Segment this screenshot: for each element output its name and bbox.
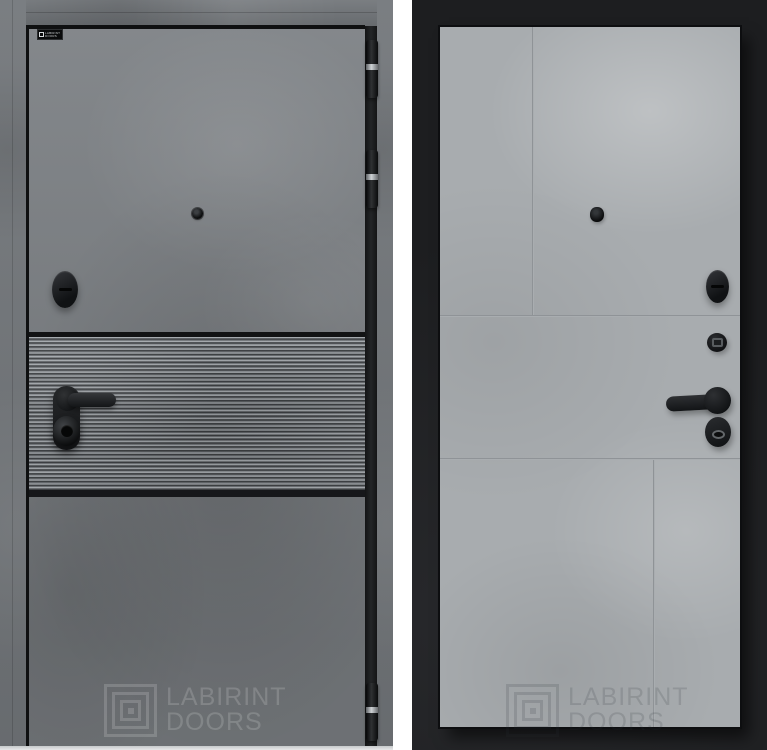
watermark-text: LABIRINT DOORS — [166, 685, 287, 735]
fluted-trim-bottom — [29, 490, 365, 497]
brand-plate-text: LABIRINT DOORS — [45, 32, 60, 38]
door-rebate-gap — [365, 26, 377, 750]
peephole — [192, 208, 203, 219]
thumbturn-knob-interior — [706, 270, 729, 303]
wc-fixator — [707, 333, 727, 352]
hinge — [366, 683, 378, 741]
watermark-line1: LABIRINT — [568, 685, 689, 710]
watermark-line2: DOORS — [568, 710, 689, 735]
peephole-interior — [590, 207, 604, 222]
hinge — [366, 150, 378, 208]
door-exterior-view: LABIRINT DOORS LABIRINT DOORS — [0, 0, 393, 750]
handle-rosette — [704, 387, 731, 414]
brand-watermark: LABIRINT DOORS — [104, 684, 287, 737]
thumbturn-knob — [52, 271, 78, 308]
brand-plate-line2: DOORS — [45, 35, 60, 38]
watermark-line2: DOORS — [166, 710, 287, 735]
panel-seam — [440, 315, 740, 317]
door-handle-exterior — [54, 385, 118, 413]
thumbturn-slot — [59, 288, 72, 291]
thumbturn-slot — [711, 285, 724, 288]
cylinder-keyway — [61, 425, 73, 437]
fixator-insert — [712, 338, 723, 347]
door-panel-interior — [440, 27, 740, 727]
hinge — [366, 40, 378, 98]
labyrinth-logo — [506, 684, 559, 737]
watermark-line1: LABIRINT — [166, 685, 287, 710]
labyrinth-logo — [104, 684, 157, 737]
door-interior-view: LABIRINT DOORS — [412, 0, 767, 750]
watermark-text: LABIRINT DOORS — [568, 685, 689, 735]
threshold-strip — [0, 746, 393, 750]
door-product-image: LABIRINT DOORS LABIRINT DOORS — [0, 0, 767, 750]
panel-seam — [532, 27, 534, 315]
door-handle-interior — [664, 386, 734, 416]
keyhole-escutcheon — [705, 417, 731, 447]
brand-watermark: LABIRINT DOORS — [506, 684, 689, 737]
brand-plate: LABIRINT DOORS — [37, 29, 63, 40]
door-frame-jamb — [377, 0, 393, 750]
lock-cylinder — [53, 416, 80, 446]
door-frame-top — [0, 0, 393, 26]
frame-leaf-gap-horizontal — [26, 25, 365, 29]
labyrinth-logo-small — [39, 32, 44, 37]
handle-lever — [68, 393, 116, 407]
door-frame-left — [0, 0, 26, 750]
keyhole — [712, 430, 725, 439]
panel-seam — [440, 458, 740, 460]
